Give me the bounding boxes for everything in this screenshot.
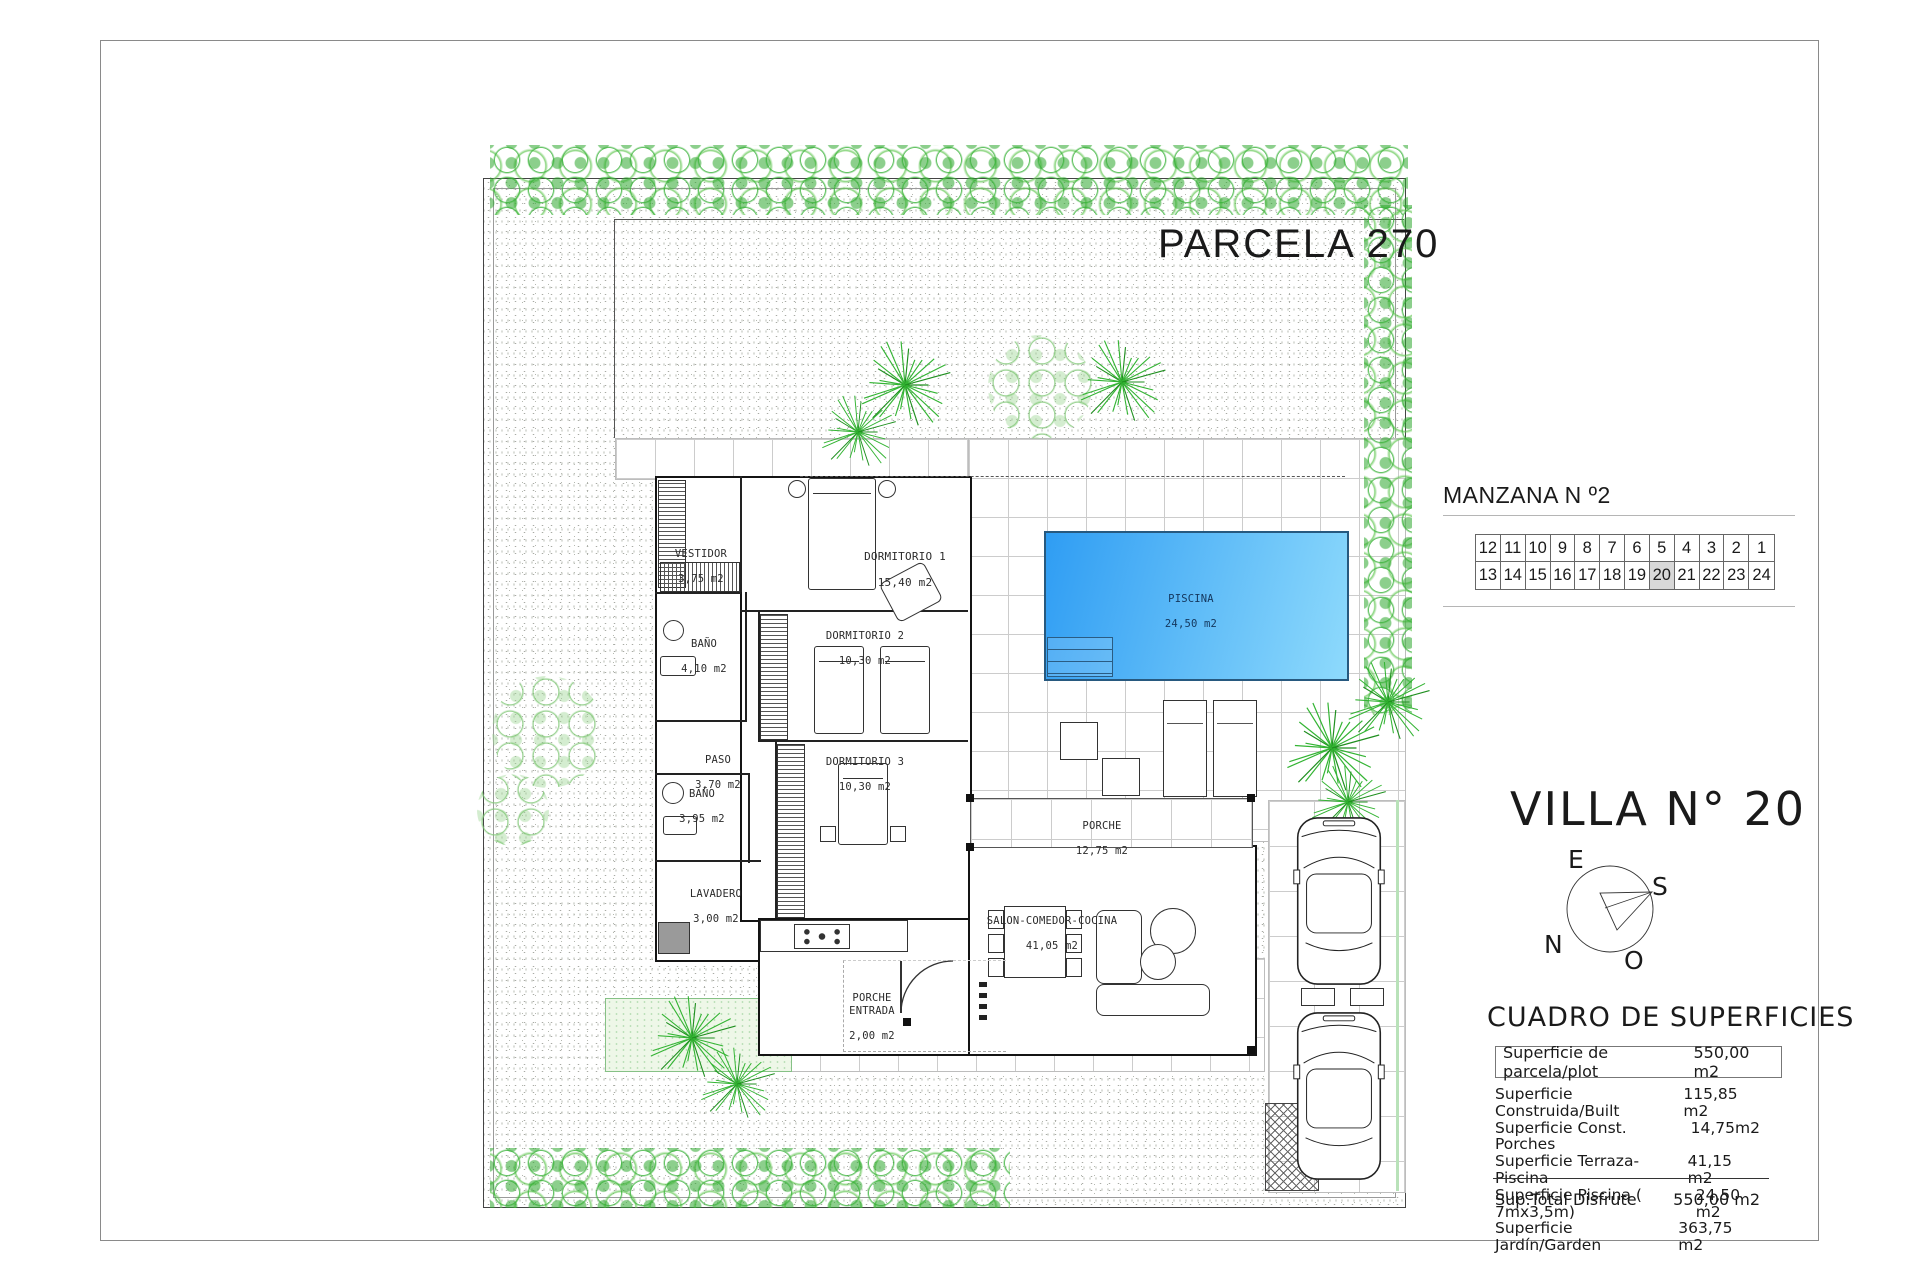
room-area: 4,10 m2 (681, 663, 727, 675)
surface-row-2: Superficie Terraza-Piscina41,15 m2 (1495, 1153, 1760, 1187)
lot-cell-14: 14 (1501, 562, 1526, 589)
tree-round-small (477, 774, 549, 846)
dining-chair (1066, 958, 1082, 977)
block-title: MANZANA N º2 (1443, 482, 1611, 509)
room-name: SALON-COMEDOR-COCINA (987, 915, 1117, 927)
compass-s: S (1652, 872, 1668, 901)
wall-bano1-right (745, 592, 747, 722)
room-area: 10,30 m2 (839, 655, 891, 667)
lot-cell-13: 13 (1476, 562, 1501, 589)
wall-vestidor-bottom (655, 592, 741, 594)
villa-title: VILLA N° 20 (1510, 782, 1806, 836)
piscina-name: PISCINA (1168, 593, 1214, 605)
patio-table (1102, 758, 1140, 796)
room-name: PORCHE ENTRADA (849, 992, 895, 1016)
room-label-porche: PORCHE 12,75 m2 (1058, 808, 1146, 858)
room-label-dormitorio2: DORMITORIO 2 10,30 m2 (800, 618, 930, 668)
wall-lavadero-top (655, 860, 761, 862)
room-name: BAÑO (691, 638, 717, 650)
room-label-dormitorio3: DORMITORIO 3 10,30 m2 (800, 744, 930, 794)
room-area: 10,30 m2 (839, 781, 891, 793)
wardrobe-dorm2 (760, 614, 788, 740)
wall-bano1-bottom (655, 720, 747, 722)
total-label: Sup.Total Disfrute (1495, 1190, 1637, 1209)
divider (1443, 606, 1795, 607)
room-name: BAÑO (689, 788, 715, 800)
compass-rose (1545, 845, 1675, 975)
lot-cell-19: 19 (1625, 562, 1650, 589)
driveway-hedge (1396, 800, 1399, 1191)
compass-o: O (1624, 946, 1644, 975)
shrub-border-right (1364, 205, 1412, 715)
table-divider (1493, 1178, 1769, 1179)
swimming-pool: PISCINA 24,50 m2 (1044, 531, 1349, 681)
patio-table (1060, 722, 1098, 760)
room-name: VESTIDOR (675, 548, 727, 560)
inner-fence-horizontal (614, 219, 1404, 220)
lot-cell-11: 11 (1501, 535, 1526, 562)
room-label-salon: SALON-COMEDOR-COCINA 41,05 m2 (982, 903, 1122, 953)
lot-cell-10: 10 (1526, 535, 1551, 562)
car-icon (1293, 815, 1385, 987)
room-name: PORCHE (1082, 820, 1121, 832)
room-area: 12,75 m2 (1076, 845, 1128, 857)
wall-vestidor-right (740, 476, 742, 592)
parcel-title: PARCELA 270 (1158, 222, 1439, 267)
room-area: 3,75 m2 (678, 573, 724, 585)
parking-marker (1350, 988, 1384, 1006)
surface-label: Superficie Terraza-Piscina (1495, 1153, 1688, 1187)
lot-cell-20: 20 (1650, 562, 1675, 589)
lot-cell-16: 16 (1551, 562, 1576, 589)
surface-label: Superficie Jardín/Garden (1495, 1220, 1678, 1254)
room-label-vestidor: VESTIDOR 3,75 m2 (662, 536, 740, 586)
porch-column (966, 794, 974, 802)
roof-overhang-dashed-line (800, 476, 1345, 477)
sun-lounger (1213, 700, 1257, 797)
lot-cell-12: 12 (1476, 535, 1501, 562)
porch-column (1247, 794, 1255, 802)
room-area: 41,05 m2 (1026, 940, 1078, 952)
lot-cell-24: 24 (1749, 562, 1774, 589)
wall-bano2-right (748, 773, 750, 863)
room-area: 15,40 m2 (878, 576, 933, 589)
porch-column (966, 843, 974, 851)
room-label-bano1: BAÑO 4,10 m2 (668, 626, 740, 676)
lot-cell-4: 4 (1675, 535, 1700, 562)
shrub-border-bottom (490, 1148, 1010, 1208)
room-name: DORMITORIO 1 (864, 550, 946, 563)
piscina-area: 24,50 m2 (1165, 618, 1217, 630)
car-icon (1293, 1010, 1385, 1182)
shrub-border-top (490, 145, 1408, 215)
room-label-porche-entrada: PORCHE ENTRADA 2,00 m2 (840, 980, 904, 1042)
lot-cell-15: 15 (1526, 562, 1551, 589)
nightstand (820, 826, 836, 842)
inner-fence-vertical (614, 219, 615, 438)
coffee-table (1140, 944, 1176, 980)
lot-cell-9: 9 (1551, 535, 1576, 562)
surface-row-0: Superficie Construida/Built115,85 m2 (1495, 1086, 1760, 1120)
room-name: DORMITORIO 2 (826, 630, 904, 642)
pool-steps (1047, 637, 1113, 677)
lot-cell-2: 2 (1724, 535, 1749, 562)
surface-value: 115,85 m2 (1683, 1086, 1760, 1120)
lot-cell-7: 7 (1600, 535, 1625, 562)
surface-value: 14,75m2 (1691, 1120, 1760, 1154)
wall-dorm1-bottom (740, 610, 968, 612)
room-area: 2,00 m2 (849, 1030, 895, 1042)
surface-label: Superficie Construida/Built (1495, 1086, 1683, 1120)
surface-row-4: Superficie Jardín/Garden363,75 m2 (1495, 1220, 1760, 1254)
lot-cell-17: 17 (1575, 562, 1600, 589)
lot-cell-3: 3 (1700, 535, 1725, 562)
entry-door-arc (898, 958, 956, 1016)
surface-value: 363,75 m2 (1678, 1220, 1760, 1254)
room-label-dormitorio1: DORMITORIO 1 15,40 m2 (840, 538, 970, 590)
compass-n: N (1544, 930, 1563, 959)
lot-cell-18: 18 (1600, 562, 1625, 589)
surfaces-rows: Superficie Construida/Built115,85 m2Supe… (1495, 1086, 1760, 1171)
room-area: 3,95 m2 (679, 813, 725, 825)
tree-round-mid (988, 335, 1092, 439)
room-name: DORMITORIO 3 (826, 756, 904, 768)
room-name: LAVADERO (690, 888, 742, 900)
site-plan-sheet: PISCINA 24,50 m2 (0, 0, 1920, 1280)
lot-cell-8: 8 (1575, 535, 1600, 562)
lot-cell-5: 5 (1650, 535, 1675, 562)
porch-column (1247, 1046, 1255, 1054)
surfaces-title: CUADRO DE SUPERFICIES (1487, 1002, 1854, 1033)
lot-cell-21: 21 (1675, 562, 1700, 589)
lot-cell-23: 23 (1724, 562, 1749, 589)
total-value: 550,00 m2 (1673, 1190, 1760, 1209)
sun-lounger (1163, 700, 1207, 797)
surfaces-plot-row: Superficie de parcela/plot 550,00 m2 (1495, 1046, 1782, 1078)
surface-value: 550,00 m2 (1693, 1043, 1774, 1081)
surface-row-1: Superficie Const. Porches14,75m2 (1495, 1120, 1760, 1154)
stove (794, 924, 850, 949)
tree-round-large (492, 676, 604, 788)
lot-cell-6: 6 (1625, 535, 1650, 562)
surface-label: Superficie Const. Porches (1495, 1120, 1691, 1154)
lot-cell-1: 1 (1749, 535, 1774, 562)
nightstand (788, 480, 806, 498)
nightstand (890, 826, 906, 842)
sofa (1096, 984, 1210, 1016)
room-label-bano2: BAÑO 3,95 m2 (666, 776, 738, 826)
fence-post-dots (979, 982, 987, 1022)
room-label-piscina: PISCINA 24,50 m2 (1136, 581, 1246, 631)
room-area: 3,00 m2 (693, 913, 739, 925)
compass-e: E (1568, 845, 1584, 874)
room-label-lavadero: LAVADERO 3,00 m2 (672, 876, 760, 926)
washing-machine (658, 922, 690, 954)
surface-label: Superficie de parcela/plot (1503, 1043, 1693, 1081)
room-name: PASO (705, 754, 731, 766)
divider (1443, 515, 1795, 516)
lot-grid: 121110987654321131415161718192021222324 (1475, 534, 1775, 590)
wall-dorm2-bottom (758, 740, 968, 742)
nightstand (878, 480, 896, 498)
lot-cell-22: 22 (1700, 562, 1725, 589)
parking-marker (1301, 988, 1335, 1006)
surfaces-total-row: Sup.Total Disfrute 550,00 m2 (1495, 1190, 1760, 1209)
surface-value: 41,15 m2 (1688, 1153, 1760, 1187)
